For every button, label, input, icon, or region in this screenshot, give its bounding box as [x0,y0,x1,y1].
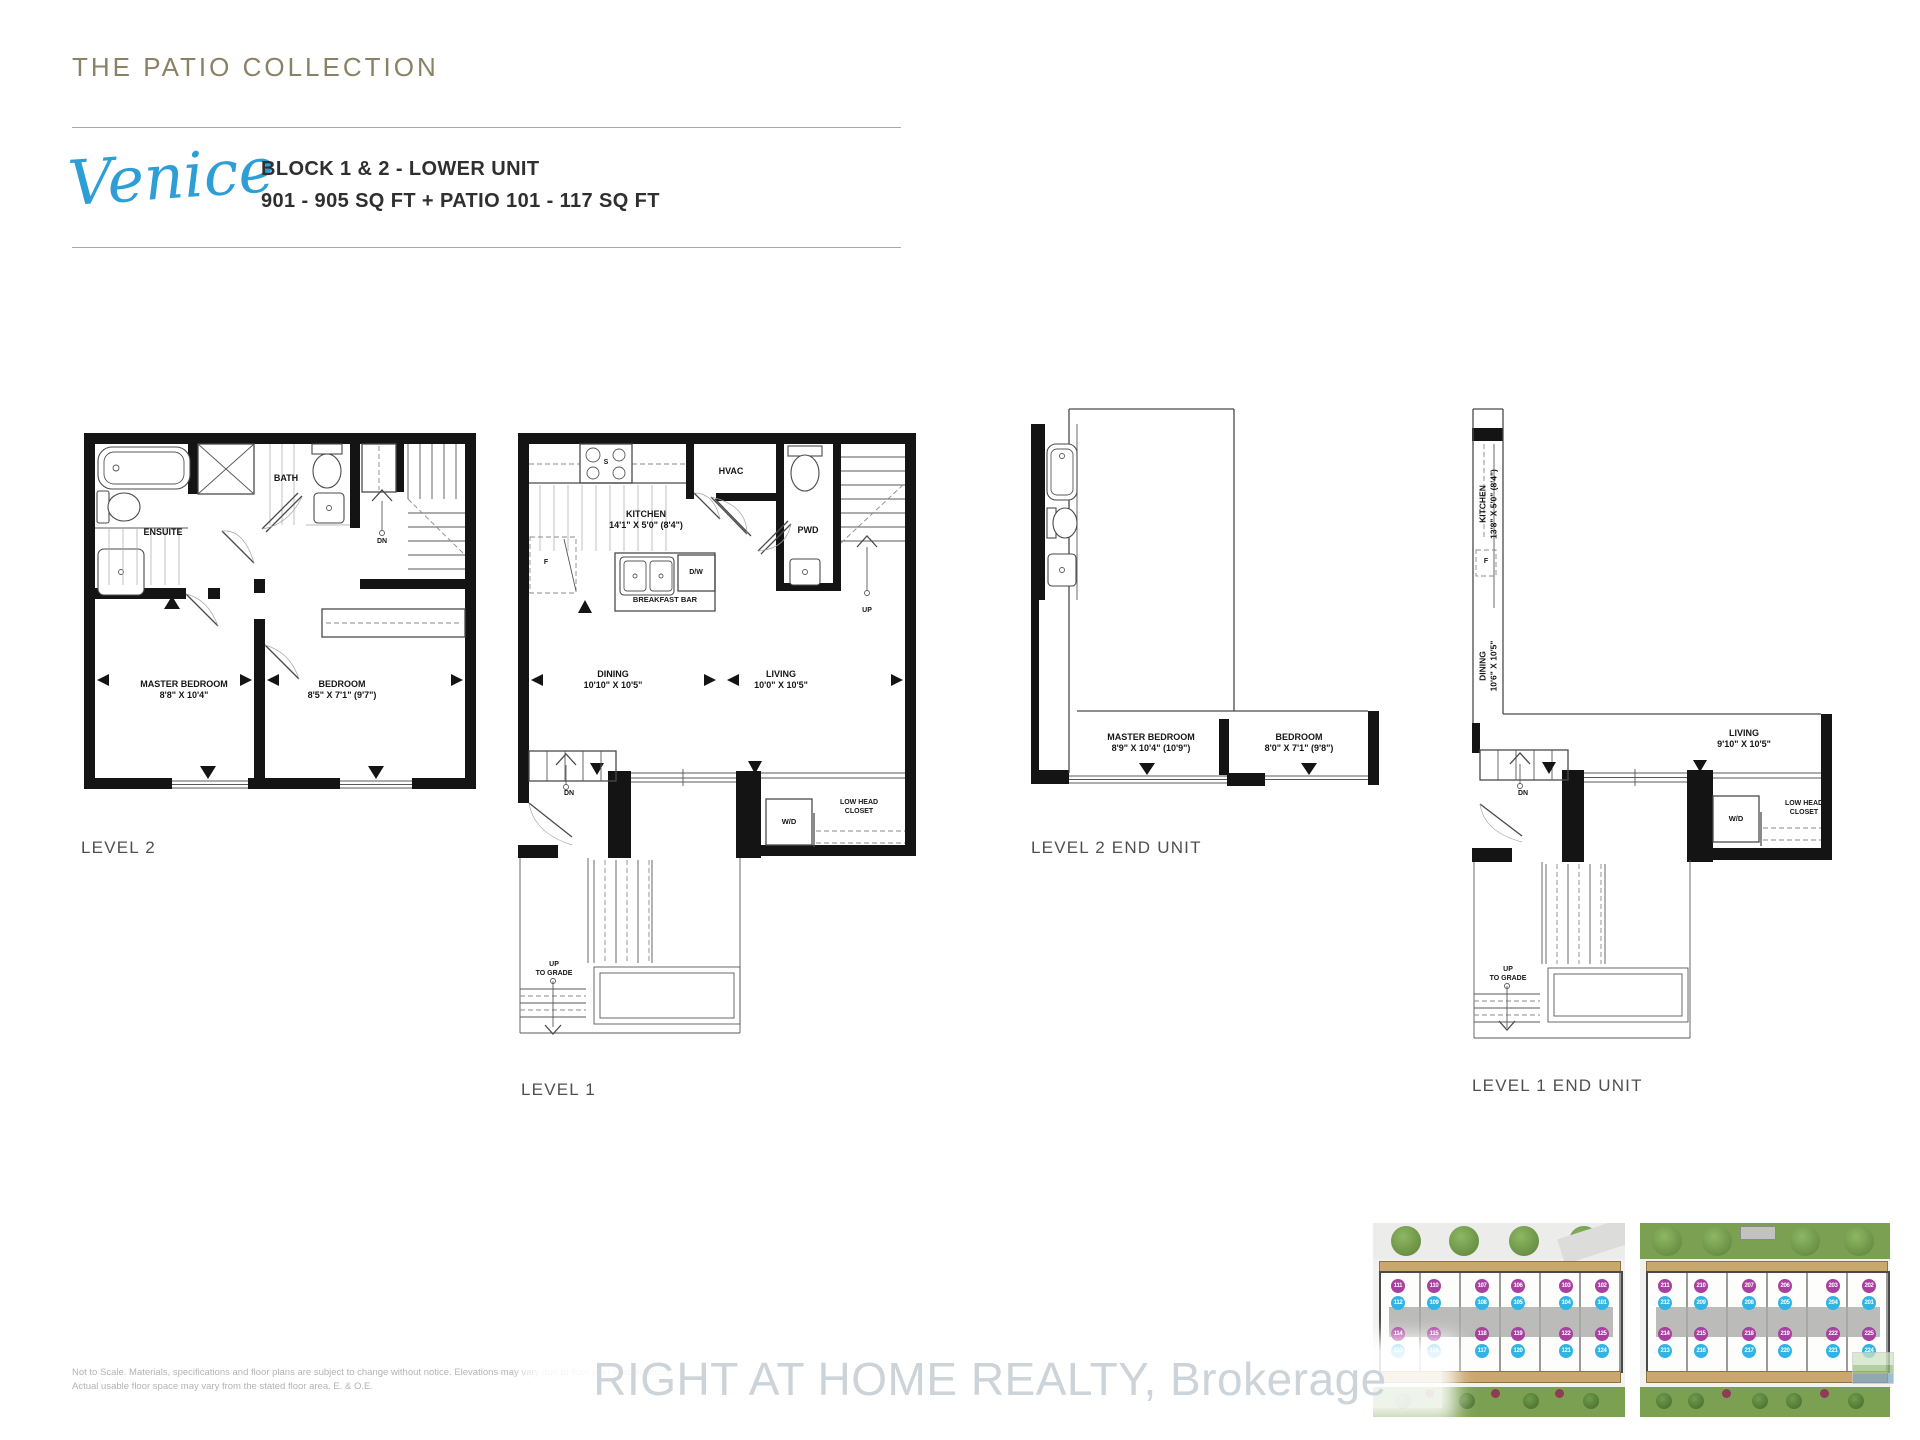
tree-icon [1844,1226,1874,1256]
unit-number-badge: 215 [1694,1327,1708,1341]
unit-number-badge: 120 [1511,1344,1525,1358]
tree-icon [1790,1226,1820,1256]
siteplan-block2: 2112102072062032022122092082052042012142… [1640,1223,1890,1417]
unit-number-badge: 201 [1862,1296,1876,1310]
unit-number-badge: 121 [1559,1344,1573,1358]
collection-title: THE PATIO COLLECTION [72,52,439,83]
kitchen-counter [529,464,686,551]
room-label-dining: DINING 10'10" X 10'5" [584,669,643,692]
building-corridor [1656,1307,1880,1337]
unit-number-badge: 112 [1391,1296,1405,1310]
toilet-icon [1047,508,1077,538]
sliding-door [631,769,736,786]
plan-caption-level2-end: LEVEL 2 END UNIT [1031,838,1202,858]
stair-label-dn: DN [564,790,574,799]
plan-caption-level2: LEVEL 2 [81,838,156,858]
dishwasher-label: D/W [689,569,703,578]
fridge-label: F [1484,558,1488,567]
bathtub-icon [98,447,190,489]
unit-number-badge: 209 [1694,1296,1708,1310]
bush-icon [1459,1393,1475,1409]
realty-logo [1852,1352,1894,1384]
bush-icon [1786,1393,1802,1409]
floorplan-level1: S KITCHEN 14'1" X 5'0" (8'4") HVAC PWD F… [518,433,916,1047]
shrub-icon [1722,1389,1731,1398]
bathtub-icon [1047,444,1077,500]
bush-icon [1688,1393,1704,1409]
level1-floorplan-drawing [518,433,916,1047]
room-label-dining: DINING 10'6" X 10'5" [1477,641,1498,692]
divider-line [72,247,901,248]
low-head-closet-label: LOW HEAD CLOSET [1785,800,1823,818]
road-curve [1557,1223,1625,1264]
building-corridor [1389,1307,1613,1337]
subtitle-sqft: 901 - 905 SQ FT + PATIO 101 - 117 SQ FT [261,190,660,213]
bush-icon [1752,1393,1768,1409]
unit-number-badge: 125 [1595,1327,1609,1341]
front-door-arc [529,803,572,845]
unit-number-badge: 212 [1658,1296,1672,1310]
tree-icon [1449,1226,1479,1256]
unit-number-badge: 109 [1427,1296,1441,1310]
unit-number-badge: 107 [1475,1279,1489,1293]
closet-shelf [362,444,396,492]
up-to-grade-label: UP TO GRADE [536,961,573,979]
room-label-master-bedroom: MASTER BEDROOM 8'8" X 10'4" [140,679,228,702]
unit-number-badge: 102 [1595,1279,1609,1293]
unit-number-badge: 220 [1778,1344,1792,1358]
door-arcs [186,493,302,679]
unit-number-badge: 206 [1778,1279,1792,1293]
patio [520,858,740,1034]
unit-number-badge: 122 [1559,1327,1573,1341]
room-label-ensuite: ENSUITE [143,527,182,538]
tree-icon [1391,1226,1421,1256]
tree-icon [1652,1226,1682,1256]
brokerage-watermark: RIGHT AT HOME REALTY, Brokerage [538,1350,1442,1408]
up-to-grade-label: UP TO GRADE [1490,966,1527,984]
model-name: Venice [66,133,278,220]
shrub-icon [1491,1389,1500,1398]
unit-number-badge: 204 [1826,1296,1840,1310]
stair-label-dn: DN [377,538,387,547]
room-label-bath: BATH [274,473,298,484]
unit-number-badge: 203 [1826,1279,1840,1293]
sink-icon [1048,554,1076,586]
landscaping [1640,1387,1890,1417]
plan-caption-level1: LEVEL 1 [521,1080,596,1100]
outline [1069,409,1368,773]
unit-number-badge: 111 [1391,1279,1405,1293]
unit-number-badge: 117 [1475,1344,1489,1358]
unit-number-badge: 211 [1658,1279,1672,1293]
unit-number-badge: 119 [1511,1327,1525,1341]
stair-label-dn: DN [1518,790,1528,799]
washer-dryer-label: W/D [1729,814,1744,823]
room-label-pwd: PWD [798,525,819,536]
unit-number-badge: 207 [1742,1279,1756,1293]
front-door-arc [1480,804,1522,842]
unit-number-badge: 222 [1826,1327,1840,1341]
unit-number-badge: 205 [1778,1296,1792,1310]
unit-number-badge: 105 [1511,1296,1525,1310]
room-label-living: LIVING 10'0" X 10'5" [754,669,808,692]
unit-number-badge: 103 [1559,1279,1573,1293]
unit-number-badge: 218 [1742,1327,1756,1341]
unit-number-badge: 210 [1694,1279,1708,1293]
unit-number-badge: 221 [1826,1344,1840,1358]
unit-number-badge: 214 [1658,1327,1672,1341]
unit-number-badge: 115 [1427,1327,1441,1341]
fridge-label: F [544,559,548,568]
floorplan-level1-end-unit: KITCHEN 13'8" X 5'0" (8'4") F DINING 10'… [1472,408,1832,1052]
siteplan-greenbelt [1640,1223,1890,1259]
brochure-page: THE PATIO COLLECTION Venice BLOCK 1 & 2 … [0,0,1920,1440]
bedroom-closet [322,609,465,637]
siteplan-road [1373,1223,1625,1259]
room-label-hvac: HVAC [719,466,744,477]
entry-stairs [529,751,616,790]
low-head-closet-label: LOW HEAD CLOSET [840,799,878,817]
unit-number-badge: 108 [1475,1296,1489,1310]
tree-icon [1702,1226,1732,1256]
room-label-bedroom: BEDROOM 8'0" X 7'1" (9'8") [1265,732,1334,755]
bush-icon [1583,1393,1599,1409]
toilet-icon [312,444,342,488]
bush-icon [1656,1393,1672,1409]
unit-number-badge: 114 [1391,1327,1405,1341]
bush-icon [1848,1393,1864,1409]
sink-icon [314,493,344,523]
powder-room-fixtures [788,446,822,585]
outline [1473,409,1821,723]
unit-number-badge: 202 [1862,1279,1876,1293]
room-label-bedroom: BEDROOM 8'5" X 7'1" (9'7") [308,679,377,702]
stairs-dn [372,444,465,569]
closet-window-band [761,773,905,778]
closet-window-band [1713,773,1821,778]
unit-number-badge: 216 [1694,1344,1708,1358]
room-label-kitchen: KITCHEN 13'8" X 5'0" (8'4") [1477,469,1498,539]
subtitle-block: BLOCK 1 & 2 - LOWER UNIT [261,158,540,181]
bush-icon [1523,1393,1539,1409]
unit-number-badge: 219 [1778,1327,1792,1341]
unit-number-badge: 124 [1595,1344,1609,1358]
unit-number-badge: 104 [1559,1296,1573,1310]
washer-dryer-label: W/D [782,817,797,826]
shrub-icon [1555,1389,1564,1398]
unit-number-badge: 225 [1862,1327,1876,1341]
floorplan-level2-end-unit: MASTER BEDROOM 8'9" X 10'4" (10'9") BEDR… [1031,408,1379,802]
room-label-master-bedroom: MASTER BEDROOM 8'9" X 10'4" (10'9") [1107,732,1195,755]
level2-floorplan-drawing [84,433,486,803]
unit-number-badge: 118 [1475,1327,1489,1341]
amenity-pad [1740,1226,1776,1240]
unit-number-badge: 217 [1742,1344,1756,1358]
sliding-door [1584,769,1687,786]
breakfast-bar-label: BREAKFAST BAR [633,595,697,604]
unit-number-badge: 208 [1742,1296,1756,1310]
plan-caption-level1-end: LEVEL 1 END UNIT [1472,1076,1643,1096]
stairs-up [841,457,905,596]
floorplan-level2: ENSUITE BATH DN MASTER BEDROOM 8'8" X 10… [84,433,486,803]
unit-number-badge: 106 [1511,1279,1525,1293]
tree-icon [1509,1226,1539,1256]
toilet-icon [97,491,140,523]
entry-stairs [1480,750,1568,789]
shower-icon [198,444,254,494]
patio [1474,860,1690,1038]
stair-label-up: UP [862,607,872,616]
low-head-closet-lines [814,813,905,847]
fridge-icon [530,537,576,593]
unit-number-badge: 213 [1658,1344,1672,1358]
divider-line [72,127,901,128]
shrub-icon [1820,1389,1829,1398]
level1-end-drawing [1472,408,1832,1052]
walls [518,433,916,858]
windows [1069,776,1368,783]
unit-number-badge: 110 [1427,1279,1441,1293]
unit-number-badge: 101 [1595,1296,1609,1310]
room-label-living: LIVING 9'10" X 10'5" [1717,728,1771,751]
stove-label: S [604,459,609,468]
room-label-kitchen: KITCHEN 14'1" X 5'0" (8'4") [609,509,683,532]
